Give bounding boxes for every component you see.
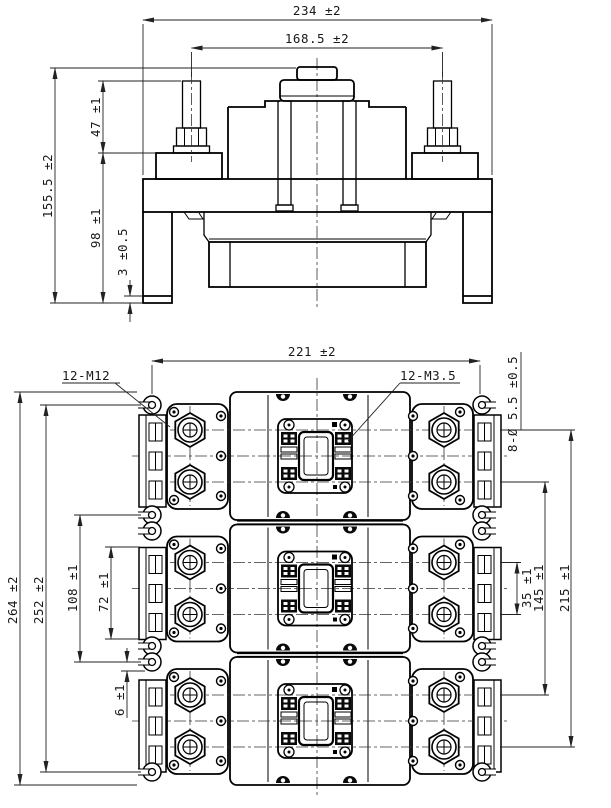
left-stud xyxy=(174,72,210,162)
right-stud xyxy=(425,72,461,162)
dim-screw-span-inner: 145 ±1 xyxy=(531,564,546,612)
dim-body-width: 221 ±2 xyxy=(288,344,336,359)
dim-overall-length: 264 ±2 xyxy=(5,576,20,624)
dim-fixing-span: 108 ±1 xyxy=(65,564,80,612)
lower-skirt xyxy=(204,212,431,242)
dim-body-height: 98 ±1 xyxy=(88,208,103,248)
left-clip xyxy=(184,212,203,219)
label-mounting-holes: 8-Ø 5.5 ±0.5 xyxy=(505,356,520,452)
flange-plate xyxy=(143,179,492,212)
lower-box xyxy=(209,242,426,287)
left-terminal-pad xyxy=(156,153,222,179)
pole-module-2 xyxy=(132,525,508,653)
drawing-canvas: 234 ±2 168.5 ±2 155.5 ±2 47 ±1 98 ±1 3 ±… xyxy=(0,0,611,808)
pole-module-1 xyxy=(132,392,508,520)
dim-screw-span-outer: 215 ±1 xyxy=(557,564,572,612)
dim-terminal-height: 47 ±1 xyxy=(88,97,103,137)
drawing-sheet: 234 ±2 168.5 ±2 155.5 ±2 47 ±1 98 ±1 3 ±… xyxy=(0,0,611,808)
pole-module-3 xyxy=(132,657,508,785)
left-pin xyxy=(278,101,291,205)
right-pin xyxy=(343,101,356,205)
dim-terminal-spacing: 168.5 ±2 xyxy=(285,31,349,46)
dim-overall-width: 234 ±2 xyxy=(293,3,341,18)
dim-edge-offset: 6 ±1 xyxy=(112,684,127,716)
dim-foot-thickness: 3 ±0.5 xyxy=(115,228,130,276)
front-view: 234 ±2 168.5 ±2 155.5 ±2 47 ±1 98 ±1 3 ±… xyxy=(40,3,492,322)
label-main-terminals: 12-M12 xyxy=(62,368,110,383)
front-dimensions: 234 ±2 168.5 ±2 155.5 ±2 47 ±1 98 ±1 3 ±… xyxy=(40,3,492,322)
plan-view: 221 ±2 12-M12 12-M3.5 8-Ø 5.5 ±0.5 35 ±1… xyxy=(5,344,575,797)
right-terminal-pad xyxy=(412,153,478,179)
label-aux-terminals: 12-M3.5 xyxy=(400,368,456,383)
right-clip xyxy=(432,212,451,219)
right-leg xyxy=(463,212,492,303)
dim-module-length: 72 ±1 xyxy=(96,572,111,612)
left-leg xyxy=(143,212,172,303)
dim-mounting-span: 252 ±2 xyxy=(31,576,46,624)
dim-overall-height: 155.5 ±2 xyxy=(40,154,55,218)
